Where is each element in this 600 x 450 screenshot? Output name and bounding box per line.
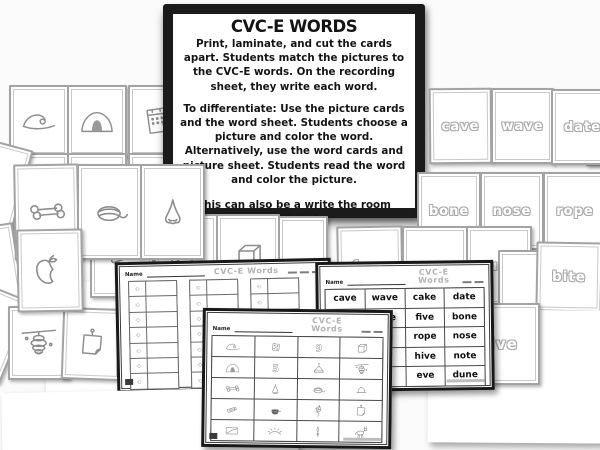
recording-sheet-write-cell [146,281,176,296]
numeral-five-icon: 5 [268,360,283,375]
doodle-icon [254,281,264,291]
line-drawing-icon [225,423,240,438]
recording-sheet-write-cell [148,373,178,388]
panel-paragraph-2: To differentiate: Use the picture cards … [180,102,408,187]
recording-sheet-write-cell [268,278,298,293]
recording-sheet-picture-cell [129,282,145,297]
pot-icon [268,402,283,417]
word-card-label: bone [429,204,469,219]
wave-icon [21,99,57,144]
word-sheet-cell: date [445,288,484,307]
picture-card-cave [67,85,127,157]
panel-title: CVC-E WORDS [180,17,408,36]
cave-icon [79,99,115,144]
name-label: Name [325,280,343,286]
recording-sheet-picture-cell [130,343,146,358]
word-sheet-header: Name CVC-E Words [320,265,488,287]
wave-icon [226,339,241,354]
doodle-icon [193,283,203,293]
picture-sheet-cell-pot [254,399,296,420]
recording-sheet-picture-cell [251,279,267,294]
cake-slice-icon [311,361,326,376]
sticky-note-icon [73,321,111,367]
picture-sheet-cell-line [211,420,253,441]
picture-sheet-cell-nose [255,378,297,399]
picture-sheet-cell-kite [297,400,339,421]
picture-sheet-cell-note [340,401,382,422]
name-line [234,327,292,333]
picture-sheet: Name CVC-E Words 95 [201,308,393,449]
picture-sheet-cell-dome [340,380,382,401]
doodle-icon [134,376,144,386]
beehive-icon [20,320,57,366]
copyright-credit [447,379,485,382]
word-sheet-cell: cake [405,289,444,308]
name-line [347,280,405,286]
publisher-logo [209,433,217,439]
doodle-icon [193,298,203,308]
word-sheet-cell: rope [406,328,445,347]
recording-sheet-write-cell [146,296,176,311]
picture-sheet-cell-cake [298,358,340,379]
sheet-title: CVC-E Words [209,267,284,277]
recording-sheet-picture-cell [131,374,147,389]
picture-card-bite [16,228,83,312]
recording-sheet-write-cell [148,358,178,373]
picture-card-nose [140,164,205,260]
doodle-icon [133,330,143,340]
picture-card-note [61,307,123,381]
word-card-label: cave [442,118,480,133]
word-sheet-cell: wave [365,289,404,308]
picture-sheet-cell-vine [297,421,339,442]
recording-sheet-picture-cell [131,359,147,374]
numeral-nine-icon: 9 [311,340,326,355]
picture-sheet-page: Name CVC-E Words 95 [205,312,389,445]
header-marks [462,281,483,284]
tube-icon [225,402,240,417]
bone-icon [225,381,240,396]
nose-icon [268,381,283,396]
word-card-label: rope [556,204,593,219]
word-card-cave: cave [429,88,493,165]
svg-text:9: 9 [315,343,322,354]
rope-icon [90,181,130,243]
dice-icon [268,339,283,354]
recording-sheet-write-cell [147,343,177,358]
publisher-logo [125,379,133,385]
word-card-bite: bite [535,241,600,312]
picture-card-rope [77,164,142,260]
word-card-label: wave [501,119,543,134]
cube-icon [354,340,369,355]
picture-sheet-cell-dice [255,336,297,357]
recording-sheet-write-cell [147,327,177,342]
picture-sheet-cell-rope [297,379,339,400]
word-sheet-cell: note [446,347,485,366]
word-sheet-cell: nose [445,327,484,346]
recording-sheet-picture-cell [130,328,146,343]
kite-icon [310,403,325,418]
recording-sheet-column-group [128,280,179,390]
picture-sheet-cell-wave [212,336,254,357]
name-label: Name [125,272,143,278]
picture-sheet-cell-cave [212,357,254,378]
dome-icon [353,382,368,397]
cave-icon [225,360,240,375]
doodle-icon [254,297,264,307]
recording-sheet-picture-cell [251,294,267,309]
word-card-label: date [564,120,600,135]
sticky-note-icon [353,403,368,418]
recording-sheet-picture-cell [130,312,146,327]
recording-sheet-write-cell [268,294,298,309]
word-sheet-cell: bone [445,308,484,327]
word-card-label: nose [493,204,532,219]
word-card-date: date [551,89,600,165]
name-label: Name [213,326,231,332]
picture-sheet-cell-hive [340,359,382,380]
word-card-rope: rope [543,172,600,250]
doodle-icon [134,361,144,371]
panel-paragraph-1: Print, laminate, and cut the cards apart… [180,37,408,94]
copyright-credit [343,438,381,441]
picture-sheet-cell-dune [254,420,296,441]
recording-sheet-picture-cell [129,297,145,312]
header-marks [362,331,383,334]
word-sheet-cell: cave [326,289,365,308]
picture-sheet-cell-bone [212,378,254,399]
word-card-wave: wave [491,88,554,164]
doodle-icon [133,345,143,355]
picture-sheet-cell-five: 5 [255,357,297,378]
svg-text:5: 5 [272,363,279,374]
product-preview-collage: CVC-E WORDS Print, laminate, and cut the… [0,0,600,450]
sheet-title: CVC-E Words [296,317,357,334]
doodle-icon [132,284,142,294]
word-sheet-cell: five [405,308,444,327]
nose-icon [153,181,193,243]
word-sheet-cell: hive [406,347,445,366]
doodle-icon [133,315,143,325]
picture-sheet-header: Name CVC-E Words [208,313,388,335]
recording-sheet-picture-cell [190,280,206,295]
doodle-icon [132,299,142,309]
rope-icon [311,382,326,397]
word-card-label: bite [552,269,586,286]
word-sheet-cell: eve [406,367,445,386]
picture-sheet-cell-tube [211,399,253,420]
picture-sheet-table: 95 [210,335,383,443]
beehive-icon [354,361,369,376]
vine-icon [310,424,325,439]
bitten-apple-icon [29,244,70,297]
picture-sheet-cell-cube [341,338,383,359]
picture-sheet-cell-nine: 9 [298,337,340,358]
dune-icon [267,423,282,438]
recording-sheet-write-cell [147,312,177,327]
recording-sheet-write-cell [207,280,237,295]
sheet-title: CVC-E Words [409,268,458,285]
